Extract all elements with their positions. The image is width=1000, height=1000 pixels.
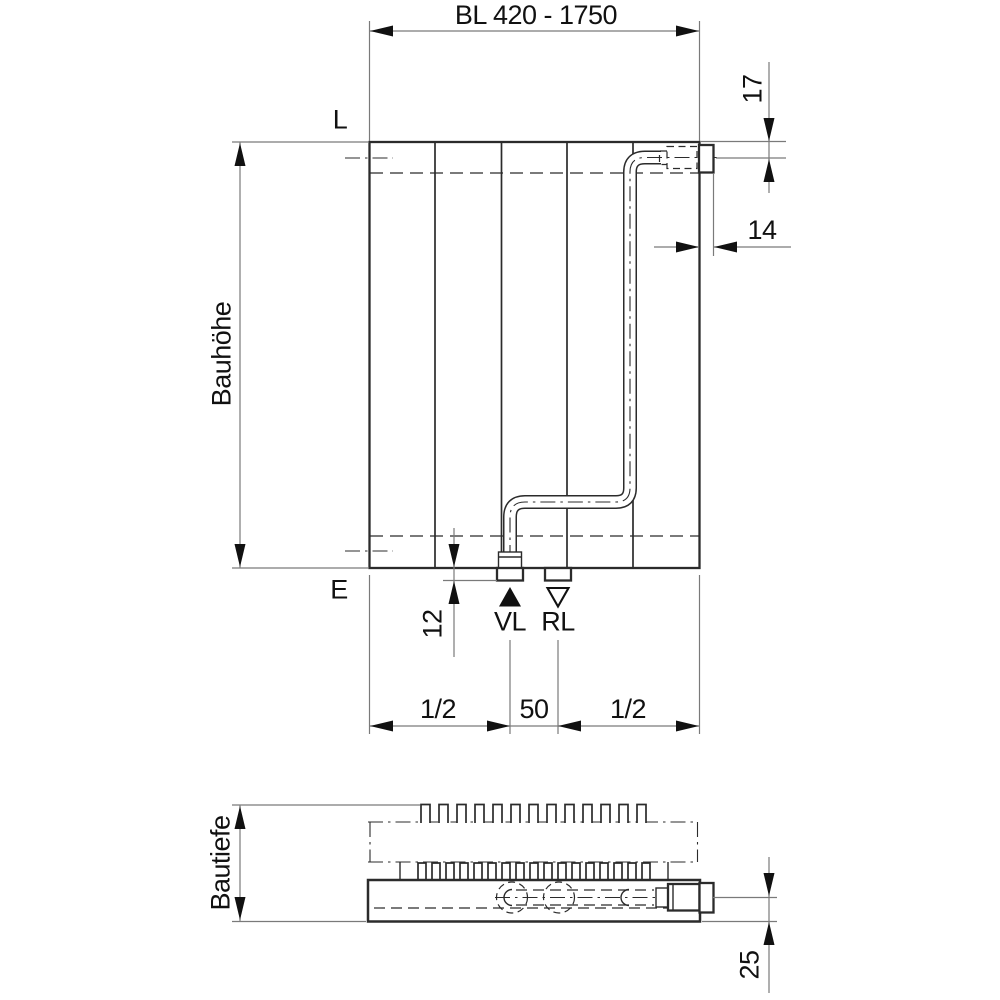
supply-flow-icon xyxy=(499,587,521,607)
return-label: RL xyxy=(541,606,575,636)
pipe-coupler xyxy=(499,552,522,568)
vent-label: L xyxy=(333,104,348,134)
side-connection-stub-section xyxy=(700,883,714,913)
dim-pipe-offset-label: 25 xyxy=(734,950,764,979)
dim-depth-label: Bautiefe xyxy=(205,815,235,910)
upper-fins xyxy=(421,805,646,824)
dim-side-offset-label: 14 xyxy=(747,215,777,245)
header-body-outline xyxy=(368,880,700,922)
valve-nipple xyxy=(656,888,668,907)
side-connection-stub xyxy=(699,145,714,173)
dim-height-label: Bauhöhe xyxy=(206,302,236,407)
dim-bottom-spacing: 1/2 50 1/2 xyxy=(370,575,700,734)
dim-stub-label: 12 xyxy=(417,609,447,638)
dim-overall-width-label: BL 420 - 1750 xyxy=(455,0,617,30)
front-view: VL RL xyxy=(345,142,717,636)
top-view xyxy=(368,805,714,922)
dim-top-offset-label: 17 xyxy=(737,74,767,103)
supply-label: VL xyxy=(494,606,527,636)
supply-stub xyxy=(497,568,523,581)
hidden-panel-contour xyxy=(368,822,698,862)
dim-height-bauhoehe: Bauhöhe xyxy=(206,142,368,568)
drawing-canvas: VL RL BL 420 - 1750 17 14 Bauhöhe L E 12 xyxy=(0,0,1000,1000)
return-flow-icon xyxy=(548,588,569,607)
dim-pipe-offset-25: 25 xyxy=(702,857,777,993)
radiator-technical-drawing: VL RL BL 420 - 1750 17 14 Bauhöhe L E 12 xyxy=(0,0,1000,1000)
return-stub xyxy=(545,568,571,581)
dim-center-spacing-label: 50 xyxy=(519,694,548,724)
lower-fins xyxy=(418,863,650,880)
dim-overall-width: BL 420 - 1750 xyxy=(370,0,700,141)
drain-label: E xyxy=(330,574,348,604)
dim-half-left-label: 1/2 xyxy=(420,694,456,724)
dim-half-right-label: 1/2 xyxy=(610,694,646,724)
